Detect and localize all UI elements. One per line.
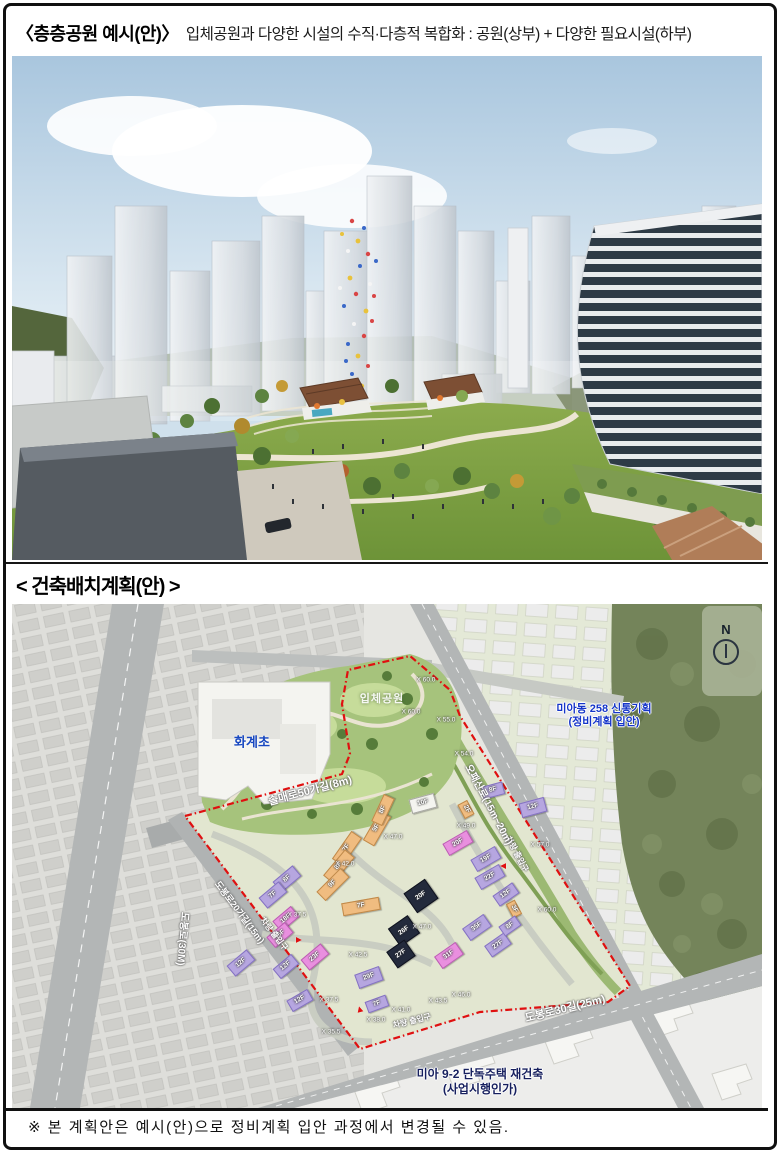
section-heading-row: < 건축배치계획(안) > [6, 562, 768, 604]
vehicle-entrance-label: 차량 출입구 [392, 1011, 433, 1031]
title-bracket: 〈층층공원 예시(안)〉 [16, 20, 179, 46]
entrance-arrow-icon: ▲ [354, 1004, 366, 1016]
north-label: N [709, 622, 743, 637]
entrances-layer: 차량 출입구차량 출입구차량 출입구▲▲▲ [12, 604, 762, 1108]
entrance-arrow-icon: ▲ [293, 935, 303, 945]
rendering-scene [12, 56, 762, 560]
footnote: ※ 본 계획안은 예시(안)으로 정비계획 입안 과정에서 변경될 수 있음. [28, 1116, 510, 1137]
title-description: 입체공원과 다양한 시설의 수직·다층적 복합화 : 공원(상부) + 다양한 … [186, 22, 691, 44]
vehicle-entrance-label: 차량 출입구 [258, 915, 291, 953]
monument-tower [508, 228, 528, 388]
section-heading: < 건축배치계획(안) > [16, 570, 180, 599]
footnote-row: ※ 본 계획안은 예시(안)으로 정비계획 입안 과정에서 변경될 수 있음. [6, 1108, 768, 1141]
north-circle-icon [713, 639, 739, 665]
park-rendering [12, 56, 762, 560]
site-plan-map: 10F8F12F2F20F19F22F7F8F9F9F8F7F20F26F27F… [12, 604, 762, 1108]
document-sheet: 〈층층공원 예시(안)〉 입체공원과 다양한 시설의 수직·다층적 복합화 : … [3, 3, 777, 1150]
office-building-right [572, 204, 762, 544]
entrance-arrow-icon: ▲ [499, 861, 509, 871]
north-arrow: N [709, 622, 743, 665]
page-title: 〈층층공원 예시(안)〉 입체공원과 다양한 시설의 수직·다층적 복합화 : … [16, 14, 762, 52]
